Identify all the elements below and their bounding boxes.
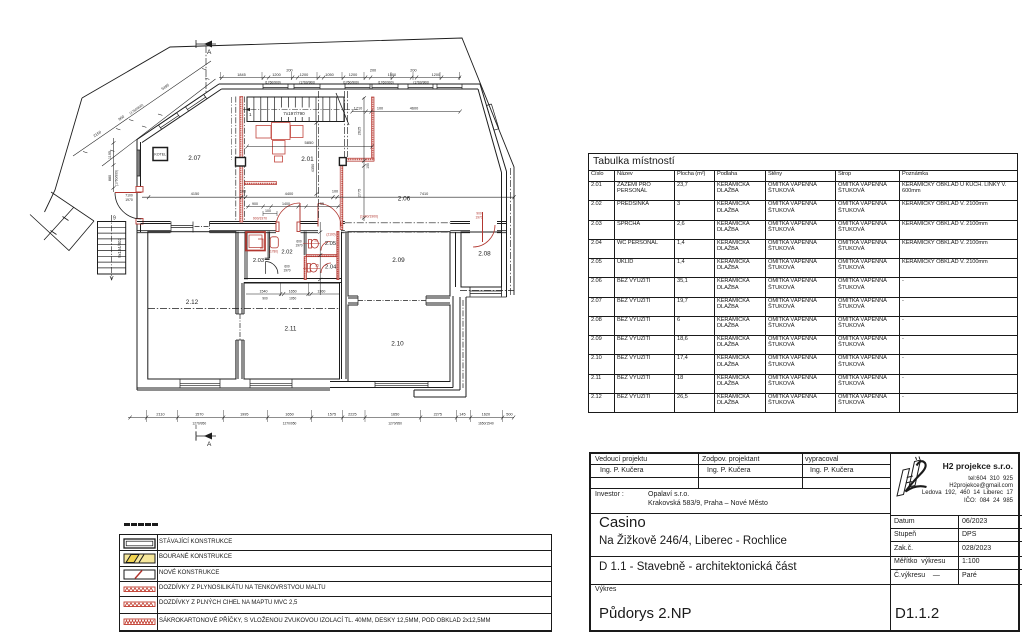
svg-text:KOTEL: KOTEL	[154, 153, 166, 157]
svg-text:A: A	[207, 49, 212, 56]
svg-text:1360: 1360	[317, 289, 325, 293]
svg-text:(1400/1900): (1400/1900)	[360, 215, 378, 219]
svg-text:1270/950: 1270/950	[192, 422, 206, 426]
svg-text:100: 100	[377, 107, 383, 111]
svg-text:1195: 1195	[108, 151, 112, 159]
svg-text:1970: 1970	[125, 198, 133, 202]
svg-text:2225: 2225	[348, 412, 356, 416]
svg-text:2110: 2110	[156, 412, 164, 416]
svg-text:(1760/900): (1760/900)	[265, 80, 281, 84]
svg-text:4400: 4400	[285, 192, 293, 196]
svg-text:200: 200	[410, 69, 416, 73]
svg-text:7x197/790: 7x197/790	[283, 111, 305, 116]
svg-text:200: 200	[370, 69, 376, 73]
svg-text:1050: 1050	[289, 297, 296, 301]
svg-text:2.01: 2.01	[301, 156, 314, 163]
svg-text:100: 100	[265, 209, 271, 213]
svg-text:5850: 5850	[305, 140, 315, 145]
svg-text:900: 900	[262, 297, 268, 301]
svg-text:1650/1540: 1650/1540	[478, 422, 494, 426]
svg-text:2.06: 2.06	[398, 196, 411, 203]
svg-text:1200: 1200	[349, 73, 357, 77]
svg-text:1575: 1575	[328, 412, 336, 416]
svg-text:(1760/900): (1760/900)	[343, 80, 359, 84]
svg-text:9x154/302: 9x154/302	[117, 238, 122, 258]
svg-text:2.04: 2.04	[325, 265, 337, 271]
svg-text:1200: 1200	[432, 73, 440, 77]
svg-text:1270/950: 1270/950	[283, 422, 297, 426]
svg-text:200: 200	[286, 69, 292, 73]
svg-text:1270/950: 1270/950	[388, 422, 402, 426]
svg-text:1540: 1540	[260, 289, 268, 293]
svg-text:2275: 2275	[434, 412, 442, 416]
svg-text:1: 1	[249, 112, 252, 117]
svg-text:1200: 1200	[300, 73, 308, 77]
svg-text:1650: 1650	[285, 412, 293, 416]
svg-text:1995: 1995	[240, 412, 248, 416]
svg-text:2.11: 2.11	[285, 326, 297, 333]
svg-text:(1760/900): (1760/900)	[115, 170, 119, 186]
svg-text:4150: 4150	[191, 192, 199, 196]
svg-text:1200: 1200	[272, 73, 280, 77]
svg-text:2.05: 2.05	[325, 241, 336, 247]
svg-text:1050: 1050	[325, 73, 333, 77]
svg-text:1845: 1845	[237, 73, 245, 77]
svg-text:900: 900	[252, 202, 258, 206]
svg-text:145: 145	[459, 412, 465, 416]
svg-text:1970: 1970	[283, 269, 290, 273]
svg-text:100: 100	[332, 190, 338, 194]
svg-text:1620: 1620	[482, 412, 490, 416]
svg-text:(1780): (1780)	[269, 250, 278, 254]
svg-text:1970: 1970	[475, 216, 482, 220]
svg-text:7410: 7410	[420, 192, 428, 196]
svg-text:900/1970: 900/1970	[253, 217, 267, 221]
svg-text:2.08: 2.08	[478, 251, 491, 258]
svg-text:9: 9	[113, 216, 116, 222]
svg-text:1570: 1570	[195, 412, 203, 416]
svg-text:(2100): (2100)	[326, 232, 335, 236]
svg-text:1500: 1500	[388, 73, 396, 77]
svg-text:105: 105	[366, 163, 370, 169]
svg-text:2.07: 2.07	[188, 155, 201, 162]
svg-text:(1760/900): (1760/900)	[378, 80, 394, 84]
svg-text:1400: 1400	[282, 202, 290, 206]
svg-text:55: 55	[320, 202, 324, 206]
svg-text:(1760/900): (1760/900)	[129, 103, 144, 115]
svg-text:4350: 4350	[311, 164, 315, 172]
svg-text:2.02: 2.02	[281, 250, 292, 256]
svg-text:880: 880	[108, 175, 112, 181]
svg-text:100: 100	[240, 190, 246, 194]
svg-text:500: 500	[506, 412, 512, 416]
svg-text:1970: 1970	[295, 243, 302, 247]
svg-text:1650: 1650	[391, 412, 399, 416]
svg-text:2.12: 2.12	[186, 299, 199, 306]
svg-text:2.03: 2.03	[253, 258, 264, 264]
svg-text:4600: 4600	[410, 107, 418, 111]
svg-text:2.10: 2.10	[391, 341, 404, 348]
svg-text:2625: 2625	[358, 127, 362, 135]
svg-text:(1760/900): (1760/900)	[413, 80, 429, 84]
svg-text:1650: 1650	[289, 289, 297, 293]
svg-text:1710: 1710	[354, 107, 362, 111]
svg-text:A: A	[207, 441, 212, 448]
svg-text:(1760/900): (1760/900)	[299, 80, 315, 84]
svg-text:2775: 2775	[358, 189, 362, 197]
svg-text:55: 55	[315, 264, 319, 268]
svg-text:2.09: 2.09	[392, 257, 405, 264]
svg-text:55: 55	[314, 239, 318, 243]
